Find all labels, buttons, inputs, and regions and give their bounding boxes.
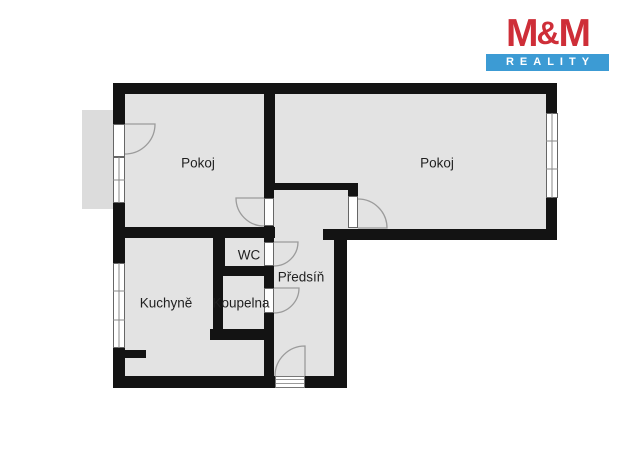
room-label-kuchyne: Kuchyně (140, 296, 193, 311)
door-icon-pokoj-right (348, 196, 358, 228)
agency-logo-bar: REALITY (486, 54, 609, 71)
wall-bottom (113, 376, 347, 388)
entrance-door-threshold (275, 376, 305, 388)
window-icon-kuchyne (113, 263, 125, 348)
room-label-koupelna: Koupelna (212, 296, 269, 311)
floor-plan: Pokoj Pokoj WC Předsíň Kuchyně Koupelna … (0, 0, 643, 468)
wall-top (113, 83, 557, 94)
room-label-predsin: Předsíň (278, 270, 325, 285)
wall-pokoj-right-bottom (323, 229, 557, 240)
room-label-pokoj-right: Pokoj (420, 156, 454, 171)
wall-notch-right (348, 183, 358, 196)
balcony-area (82, 110, 113, 209)
wall-left-upper (113, 83, 125, 124)
agency-logo: M&M REALITY (486, 14, 609, 71)
ampersand-glyph: & (536, 15, 558, 51)
wall-hall-left-4 (264, 313, 274, 376)
wall-hall-left-2 (264, 226, 274, 242)
door-icon-balcony (113, 124, 125, 157)
agency-logo-name: M&M (486, 14, 609, 53)
wall-hall-right (334, 229, 347, 388)
door-icon-pokoj-left (264, 198, 274, 226)
wall-wc-bottom (213, 266, 266, 276)
wall-kitchen-stub (125, 350, 146, 358)
wall-room-divider (264, 83, 275, 190)
wall-notch-top (264, 183, 358, 190)
agency-logo-tagline: REALITY (500, 57, 595, 68)
wall-pokoj-left-bottom (113, 227, 275, 238)
wall-koupelna-bottom (210, 329, 274, 340)
wall-hall-left-1 (264, 190, 274, 198)
door-icon-wc (264, 242, 274, 266)
room-label-pokoj-left: Pokoj (181, 156, 215, 171)
window-icon-pokoj-left (113, 157, 125, 203)
room-label-wc: WC (238, 248, 261, 263)
window-icon-pokoj-right (546, 113, 558, 198)
